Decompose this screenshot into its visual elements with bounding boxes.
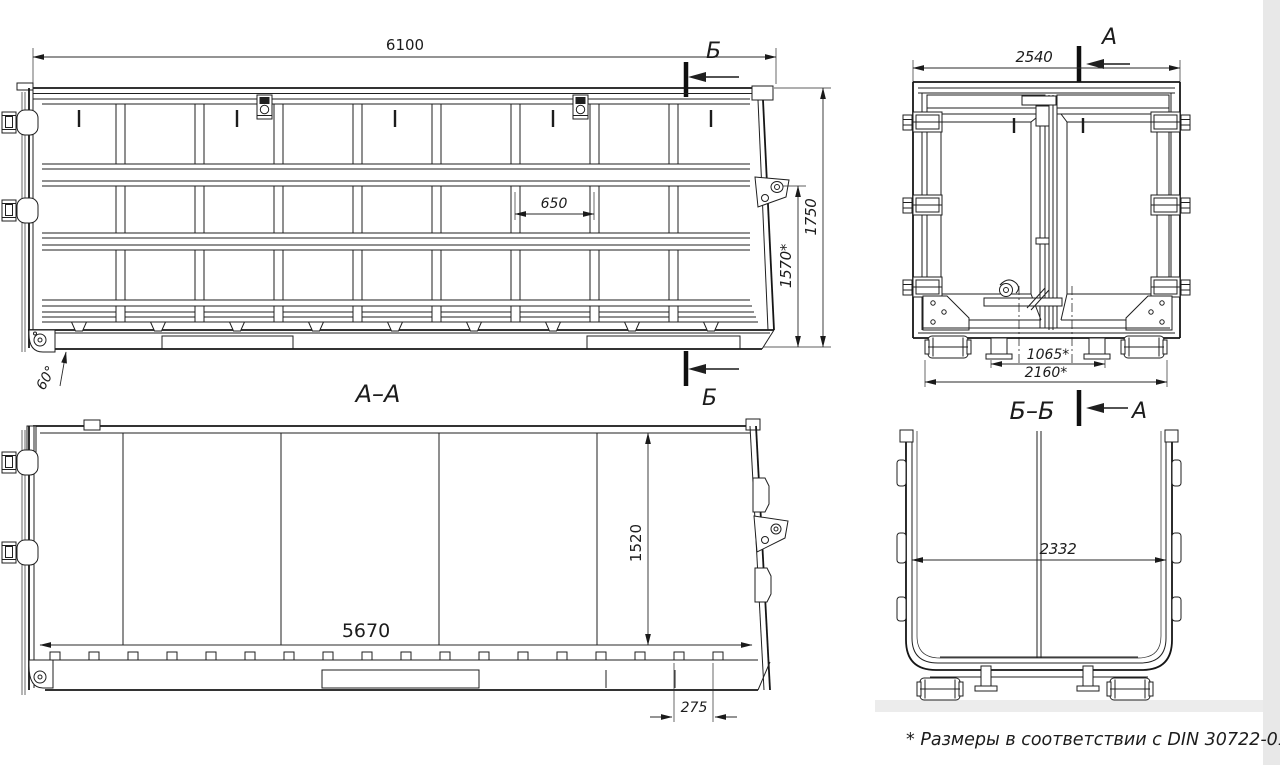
- cut-label-b-bottom: Б: [702, 386, 717, 411]
- cut-label-a-bottom: А: [1130, 399, 1147, 424]
- panel-rails: [42, 104, 758, 322]
- section-bb-title: Б–Б: [1010, 397, 1055, 425]
- hinge-icon: [903, 112, 942, 132]
- inner-wall-seams: [123, 433, 597, 645]
- dim-inner-height-label: 1570*: [777, 243, 795, 288]
- dim-angle-label: 60°: [34, 363, 60, 392]
- dim-roller-span-label: 2160*: [1025, 365, 1068, 381]
- dim-width-label: 2540: [1016, 48, 1053, 66]
- rear-corner-block: [752, 86, 773, 100]
- dim-inner-width-2332: 2332: [912, 540, 1166, 560]
- dim-inner-height-label: 1520: [627, 524, 645, 562]
- hinge-icon: [2, 450, 38, 475]
- section-bb-view: 2332: [897, 430, 1181, 700]
- wall-top-cap: [900, 430, 913, 442]
- hinge-icon: [2, 198, 38, 223]
- cut-label-a-top: А: [1100, 25, 1117, 50]
- left-door: [927, 95, 1045, 328]
- din-note: * Размеры в соответствии с DIN 30722-01: [906, 730, 1280, 750]
- hinge-icon: [1151, 277, 1190, 297]
- dim-width-2540: 2540: [913, 48, 1180, 84]
- roller-icon: [917, 678, 963, 700]
- dim-roller-span-2160: 2160*: [925, 360, 1167, 387]
- top-step: [84, 420, 100, 430]
- shackle-icon: [257, 95, 272, 119]
- dim-panel-650: 650: [515, 192, 594, 220]
- hinge-icon: [2, 540, 38, 565]
- section-aa-view: 5670 1520: [2, 419, 788, 722]
- drawing-sheet: 6100 Б: [0, 0, 1280, 765]
- rear-door-section: [746, 419, 788, 690]
- dim-inner-height-1520: 1520: [627, 433, 648, 645]
- hinge-icon: [1151, 112, 1190, 132]
- scan-edge-strip: [1263, 0, 1280, 765]
- hinge-icon: [2, 110, 38, 135]
- cut-label-b-top: Б: [706, 39, 721, 64]
- front-corner-cap: [17, 83, 33, 90]
- underframe: [33, 652, 770, 690]
- wall-top-cap: [1165, 430, 1178, 442]
- dim-angle-60: 60°: [34, 352, 66, 393]
- panel-weld-ticks: [79, 110, 711, 127]
- side-view: 6100 Б: [2, 36, 831, 411]
- dim-inner-length-5670: 5670: [40, 620, 752, 645]
- dim-length-6100: 6100: [33, 36, 776, 84]
- rear-view: А 2540: [903, 25, 1190, 426]
- dim-tab-pitch-275: 275: [650, 663, 737, 722]
- section-cut-a-top: А: [1079, 25, 1130, 82]
- technical-drawing: 6100 Б: [0, 0, 1280, 765]
- roller-icon: [925, 336, 971, 358]
- dim-height-label: 1750: [802, 199, 820, 236]
- hinge-icon: [1151, 195, 1190, 215]
- hinge-icon: [903, 277, 942, 297]
- door-lock-assembly: [984, 95, 1072, 366]
- dim-feet-span-label: 1065*: [1027, 347, 1070, 363]
- section-aa-title: А–А: [354, 380, 401, 408]
- scan-shade-band: [875, 700, 1263, 712]
- door-hook: [755, 177, 789, 207]
- roller-icon: [1107, 678, 1153, 700]
- shackle-icon: [573, 95, 588, 119]
- dim-inner-width-label: 2332: [1040, 540, 1077, 558]
- section-cut-b-bottom: Б: [686, 351, 739, 411]
- roller-icon: [1121, 336, 1167, 358]
- dim-panel-label: 650: [541, 196, 568, 212]
- front-pivot-roller: [29, 660, 53, 688]
- dim-inner-length-label: 5670: [342, 620, 390, 642]
- dim-length-label: 6100: [386, 36, 424, 54]
- front-pivot-roller: [29, 330, 55, 352]
- dim-tab-pitch-label: 275: [681, 700, 708, 716]
- underframe: [48, 330, 774, 349]
- section-cut-a-bottom: А: [1079, 390, 1147, 426]
- hinge-icon: [903, 195, 942, 215]
